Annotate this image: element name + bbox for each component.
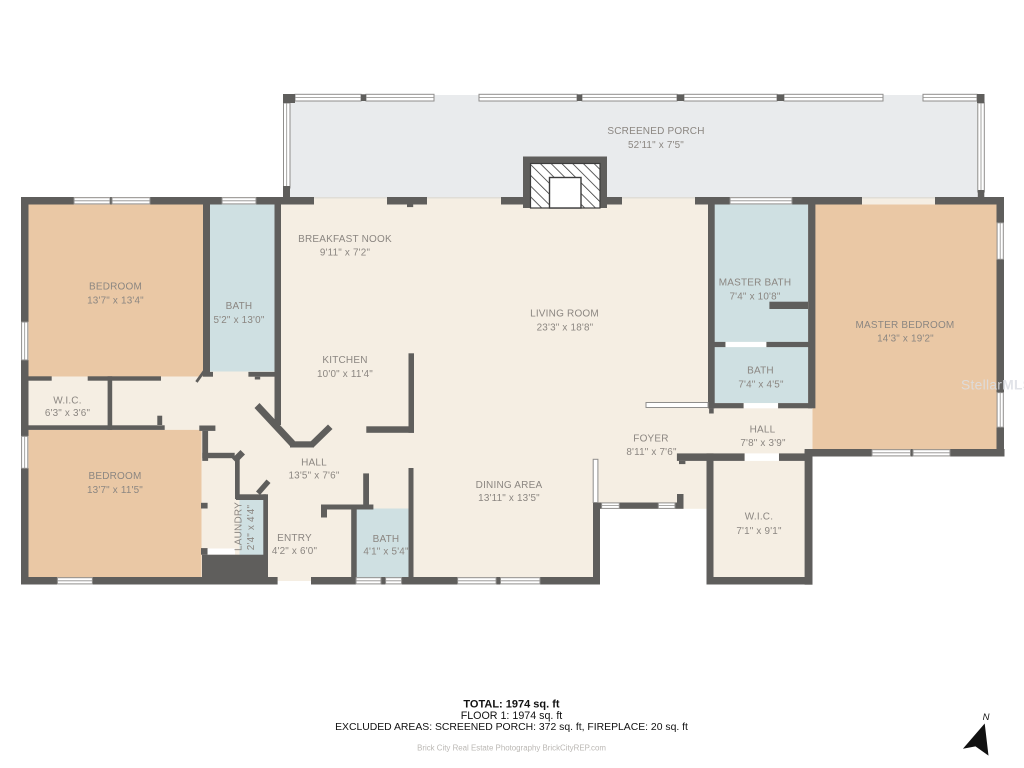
svg-text:52'11" x 7'5": 52'11" x 7'5"	[628, 140, 684, 151]
svg-text:9'11" x 7'2": 9'11" x 7'2"	[320, 248, 371, 259]
svg-text:BREAKFAST NOOK: BREAKFAST NOOK	[298, 234, 392, 245]
svg-text:HALL: HALL	[750, 425, 776, 436]
svg-text:FOYER: FOYER	[633, 434, 668, 445]
svg-text:BEDROOM: BEDROOM	[89, 282, 142, 293]
svg-text:23'3" x 18'8": 23'3" x 18'8"	[537, 323, 594, 334]
svg-text:13'7" x 13'4": 13'7" x 13'4"	[87, 296, 144, 307]
svg-text:BATH: BATH	[373, 534, 400, 545]
svg-text:SCREENED PORCH: SCREENED PORCH	[607, 126, 704, 137]
svg-text:StellarMLS: StellarMLS	[961, 378, 1024, 393]
svg-text:N: N	[983, 712, 990, 723]
svg-text:14'3" x 19'2": 14'3" x 19'2"	[877, 334, 934, 345]
svg-text:TOTAL: 1974 sq. ft: TOTAL: 1974 sq. ft	[463, 699, 560, 711]
svg-text:13'11" x 13'5": 13'11" x 13'5"	[478, 493, 540, 504]
svg-text:KITCHEN: KITCHEN	[322, 355, 367, 366]
svg-text:Brick City Real Estate Photogr: Brick City Real Estate Photography Brick…	[417, 744, 606, 753]
svg-text:W.I.C.: W.I.C.	[53, 396, 81, 407]
svg-text:ENTRY: ENTRY	[277, 533, 312, 544]
svg-text:FLOOR 1: 1974 sq. ft: FLOOR 1: 1974 sq. ft	[461, 710, 563, 722]
svg-text:4'2" x 6'0": 4'2" x 6'0"	[272, 546, 318, 557]
svg-text:7'8" x 3'9": 7'8" x 3'9"	[740, 438, 786, 449]
svg-text:MASTER BEDROOM: MASTER BEDROOM	[856, 320, 955, 331]
svg-text:10'0" x 11'4": 10'0" x 11'4"	[317, 369, 373, 380]
svg-text:7'4" x 10'8": 7'4" x 10'8"	[729, 292, 780, 303]
svg-text:W.I.C.: W.I.C.	[745, 512, 773, 523]
svg-text:7'4" x 4'5": 7'4" x 4'5"	[738, 380, 784, 391]
svg-text:13'5" x 7'6": 13'5" x 7'6"	[288, 471, 339, 482]
svg-text:EXCLUDED AREAS: SCREENED PORCH: EXCLUDED AREAS: SCREENED PORCH: 372 sq. …	[335, 722, 688, 733]
svg-text:8'11" x 7'6": 8'11" x 7'6"	[626, 447, 677, 458]
svg-text:4'1" x 5'4": 4'1" x 5'4"	[363, 547, 409, 558]
svg-text:6'3" x 3'6": 6'3" x 3'6"	[45, 408, 91, 419]
svg-text:2'4" x 4'4": 2'4" x 4'4"	[246, 505, 257, 551]
svg-text:13'7" x 11'5": 13'7" x 11'5"	[87, 485, 143, 496]
svg-text:BATH: BATH	[226, 301, 253, 312]
svg-text:BEDROOM: BEDROOM	[88, 471, 141, 482]
svg-text:BATH: BATH	[747, 366, 774, 377]
svg-text:5'2" x 13'0": 5'2" x 13'0"	[213, 315, 264, 326]
svg-text:MASTER BATH: MASTER BATH	[719, 278, 792, 289]
svg-text:DINING AREA: DINING AREA	[476, 480, 543, 491]
svg-text:LAUNDRY: LAUNDRY	[234, 502, 245, 551]
svg-text:LIVING ROOM: LIVING ROOM	[530, 309, 599, 320]
svg-text:7'1" x 9'1": 7'1" x 9'1"	[736, 526, 782, 537]
svg-text:HALL: HALL	[301, 458, 327, 469]
